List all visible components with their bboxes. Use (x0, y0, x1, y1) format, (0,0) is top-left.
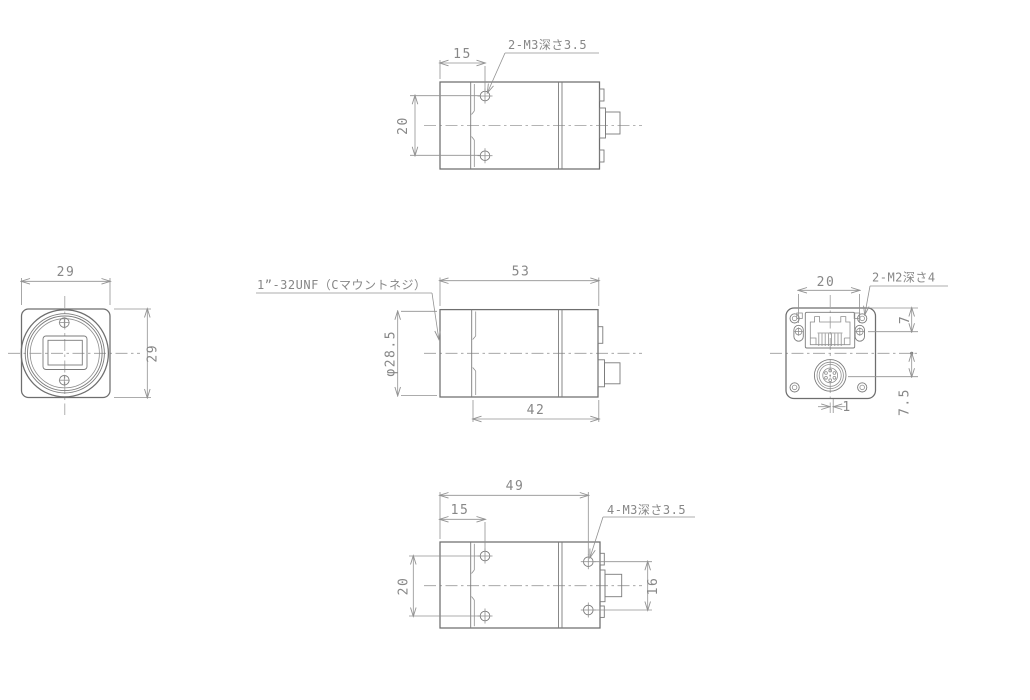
callout-text: 4-M3深さ3.5 (607, 503, 686, 517)
dim-text-20: 20 (396, 116, 411, 135)
mount-ring-divider (471, 542, 475, 628)
dim-text-15: 15 (451, 503, 470, 518)
screw-hole (581, 554, 596, 569)
callout-2-m3: 2-M3深さ3.5 (488, 38, 600, 93)
side-screw-tab (600, 606, 604, 617)
dim-text-20: 20 (397, 577, 412, 596)
view-front: 29 29 (8, 265, 161, 415)
side-screw-tab (600, 89, 605, 101)
screw-hole (581, 603, 596, 618)
dim-text-15: 15 (453, 47, 472, 62)
dim-text-20: 20 (817, 275, 836, 290)
dim-text-7: 7 (898, 315, 913, 324)
circular-connector-top (600, 108, 621, 138)
dim-text-53: 53 (512, 265, 531, 280)
dim-text-1: 1 (842, 400, 851, 415)
dimension-42: 42 (473, 400, 599, 422)
dimension-15: 15 (440, 503, 485, 551)
view-bottom: 49 15 20 16 4-M3深さ3.5 (397, 479, 696, 628)
phillips-screw (59, 375, 70, 386)
body-outline (440, 542, 600, 628)
dimension-15: 15 (440, 47, 485, 90)
dim-text-16: 16 (646, 577, 661, 596)
dim-text-29: 29 (57, 265, 76, 280)
callout-c-mount: 1”-32UNF（Cマウントネジ） (256, 278, 439, 339)
side-screw-tab (600, 150, 605, 162)
dimension-1: 1 (818, 399, 852, 415)
view-side: 53 42 φ28.5 1”-32UNF（Cマウントネジ） (256, 265, 642, 423)
corner-screw (858, 383, 867, 392)
dimension-53: 53 (440, 265, 599, 307)
callout-text: 2-M2深さ4 (872, 271, 936, 285)
m2-screw (855, 325, 864, 341)
view-rear: 20 2-M2深さ4 7 7.5 1 (770, 271, 948, 416)
dim-text-dia: φ28.5 (384, 330, 399, 377)
side-screw-tab (598, 327, 603, 344)
circular-connector-side (598, 360, 620, 387)
dim-text-7-5: 7.5 (898, 388, 913, 416)
camera-dimension-drawing: 15 20 2-M3深さ3.5 (0, 0, 1030, 700)
corner-screw (790, 383, 799, 392)
dim-text-49: 49 (506, 479, 525, 494)
dimension-20: 20 (799, 275, 860, 323)
callout-4-m3: 4-M3深さ3.5 (590, 503, 695, 558)
callout-text: 1”-32UNF（Cマウントネジ） (257, 278, 427, 292)
callout-text: 2-M3深さ3.5 (508, 38, 587, 52)
dim-text-29: 29 (146, 344, 161, 363)
view-top: 15 20 2-M3深さ3.5 (396, 38, 642, 169)
side-screw-tab (600, 553, 604, 565)
dim-text-42: 42 (527, 403, 546, 418)
m2-screw (794, 325, 803, 341)
dimension-29-width: 29 (22, 265, 111, 305)
drawing-sheet: 15 20 2-M3深さ3.5 (0, 0, 1030, 700)
circular-connector (814, 360, 846, 392)
